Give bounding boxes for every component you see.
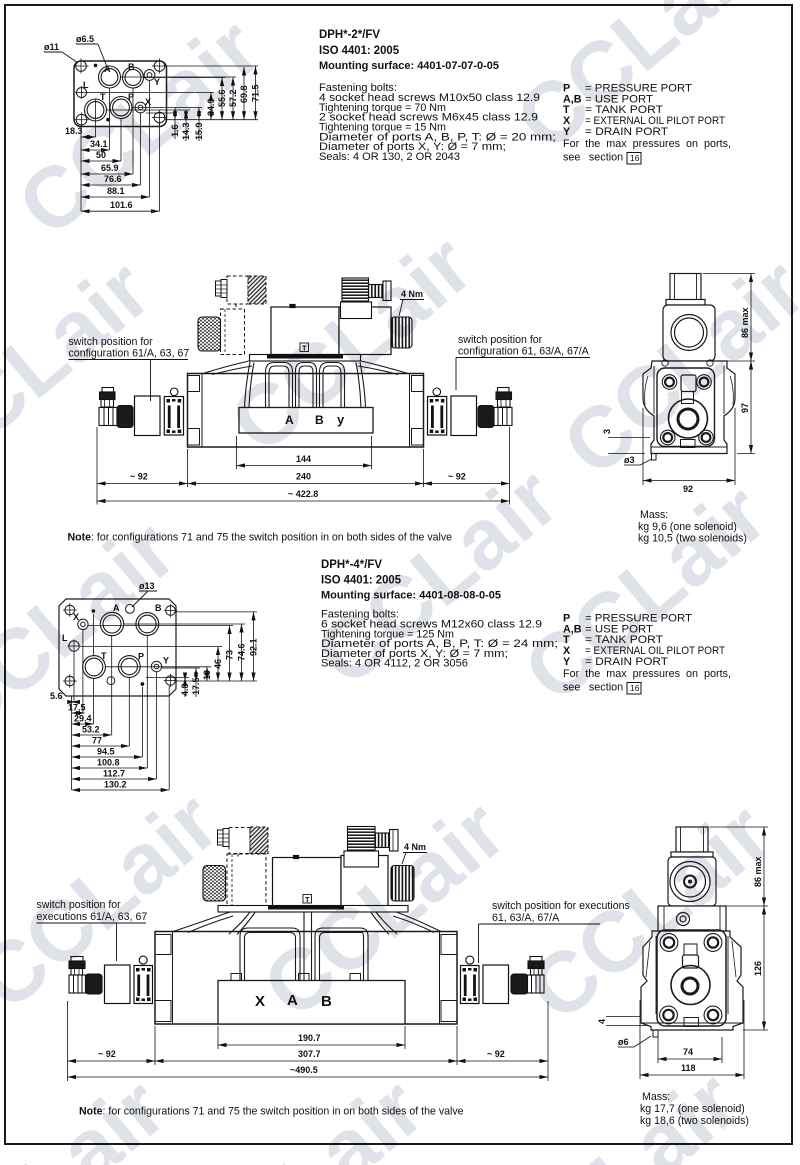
svg-text:94.5: 94.5 — [97, 747, 115, 757]
svg-text:ø11: ø11 — [44, 42, 59, 52]
svg-text:16: 16 — [630, 153, 640, 163]
svg-text:~490.5: ~490.5 — [290, 1065, 318, 1075]
svg-text:~ 92: ~ 92 — [130, 472, 148, 482]
svg-text:A: A — [104, 64, 111, 74]
svg-text:~ 92: ~ 92 — [487, 1049, 505, 1059]
svg-text:L: L — [83, 80, 89, 90]
svg-text:19: 19 — [202, 670, 212, 680]
svg-text:240: 240 — [296, 472, 311, 482]
svg-text:53.2: 53.2 — [82, 725, 100, 735]
svg-text:112.7: 112.7 — [103, 769, 125, 779]
svg-text:307.7: 307.7 — [298, 1049, 321, 1059]
svg-text:74.6: 74.6 — [237, 643, 247, 661]
svg-text:~ 422.8: ~ 422.8 — [288, 489, 318, 499]
svg-text:73: 73 — [225, 650, 235, 660]
svg-text:ø6.5: ø6.5 — [76, 34, 94, 44]
svg-text:CCLair: CCLair — [0, 1060, 183, 1165]
svg-text:4: 4 — [597, 1019, 607, 1024]
svg-text:Seals: 4 OR 130, 2 OR 2043: Seals: 4 OR 130, 2 OR 2043 — [319, 151, 460, 163]
svg-text:DPH*-2*/FV: DPH*-2*/FV — [319, 29, 380, 41]
svg-text:4.8: 4.8 — [180, 683, 190, 696]
svg-text:92.1: 92.1 — [249, 638, 259, 656]
svg-text:97: 97 — [740, 403, 750, 413]
svg-text:17.5: 17.5 — [191, 677, 201, 695]
svg-text:switch position for: switch position for — [458, 334, 543, 346]
svg-text:Mounting surface: 4401-07-07-0: Mounting surface: 4401-07-07-0-05 — [319, 60, 499, 72]
svg-text:CCLair: CCLair — [479, 1053, 757, 1165]
svg-text:46: 46 — [213, 659, 223, 669]
svg-text:61, 63/A, 67/A: 61, 63/A, 67/A — [492, 912, 560, 924]
svg-text:P: P — [138, 652, 144, 662]
svg-text:Y: Y — [163, 656, 169, 666]
svg-text:~ 92: ~ 92 — [448, 472, 466, 482]
svg-text:16: 16 — [630, 683, 640, 693]
svg-text:ISO 4401: 2005: ISO 4401: 2005 — [319, 45, 400, 57]
svg-text:126: 126 — [753, 961, 763, 976]
svg-text:T: T — [305, 895, 310, 904]
svg-text:77: 77 — [92, 736, 102, 746]
svg-text:T: T — [101, 651, 107, 661]
svg-text:ø6: ø6 — [618, 1037, 629, 1047]
svg-text:CCLair: CCLair — [1, 0, 279, 255]
svg-text:configuration 61, 63/A, 67/A: configuration 61, 63/A, 67/A — [458, 346, 590, 358]
svg-text:130.2: 130.2 — [104, 780, 127, 790]
svg-text:100.8: 100.8 — [97, 758, 120, 768]
svg-text:~ 92: ~ 92 — [98, 1049, 116, 1059]
svg-text:144: 144 — [296, 454, 311, 464]
svg-text:29.4: 29.4 — [74, 714, 92, 724]
svg-text:X: X — [255, 993, 265, 1010]
svg-text:CCLair: CCLair — [0, 242, 168, 497]
svg-text:17.5: 17.5 — [68, 703, 86, 713]
